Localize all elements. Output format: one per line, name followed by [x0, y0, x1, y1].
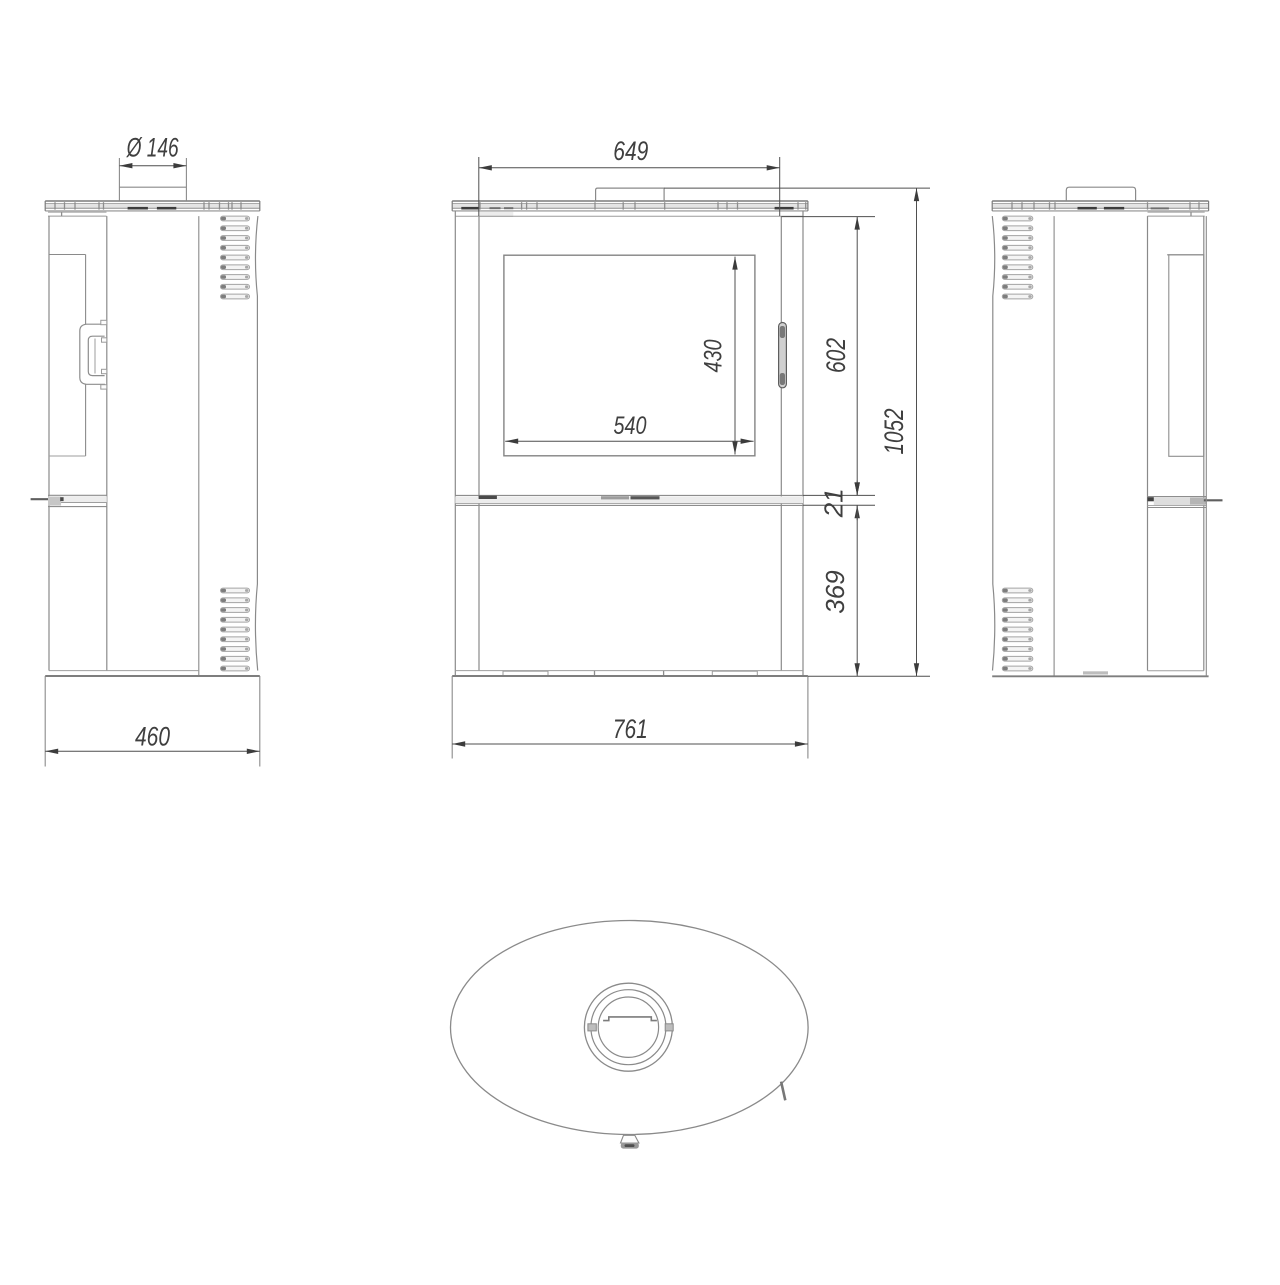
svg-text:430: 430	[700, 339, 728, 372]
svg-text:540: 540	[614, 412, 647, 440]
svg-text:649: 649	[613, 136, 648, 166]
svg-text:369: 369	[820, 570, 850, 613]
svg-text:1052: 1052	[879, 409, 909, 455]
svg-text:21: 21	[819, 488, 849, 518]
svg-text:602: 602	[821, 338, 851, 373]
svg-text:Ø 146: Ø 146	[126, 133, 179, 163]
svg-text:460: 460	[135, 722, 170, 752]
svg-text:761: 761	[613, 714, 648, 744]
